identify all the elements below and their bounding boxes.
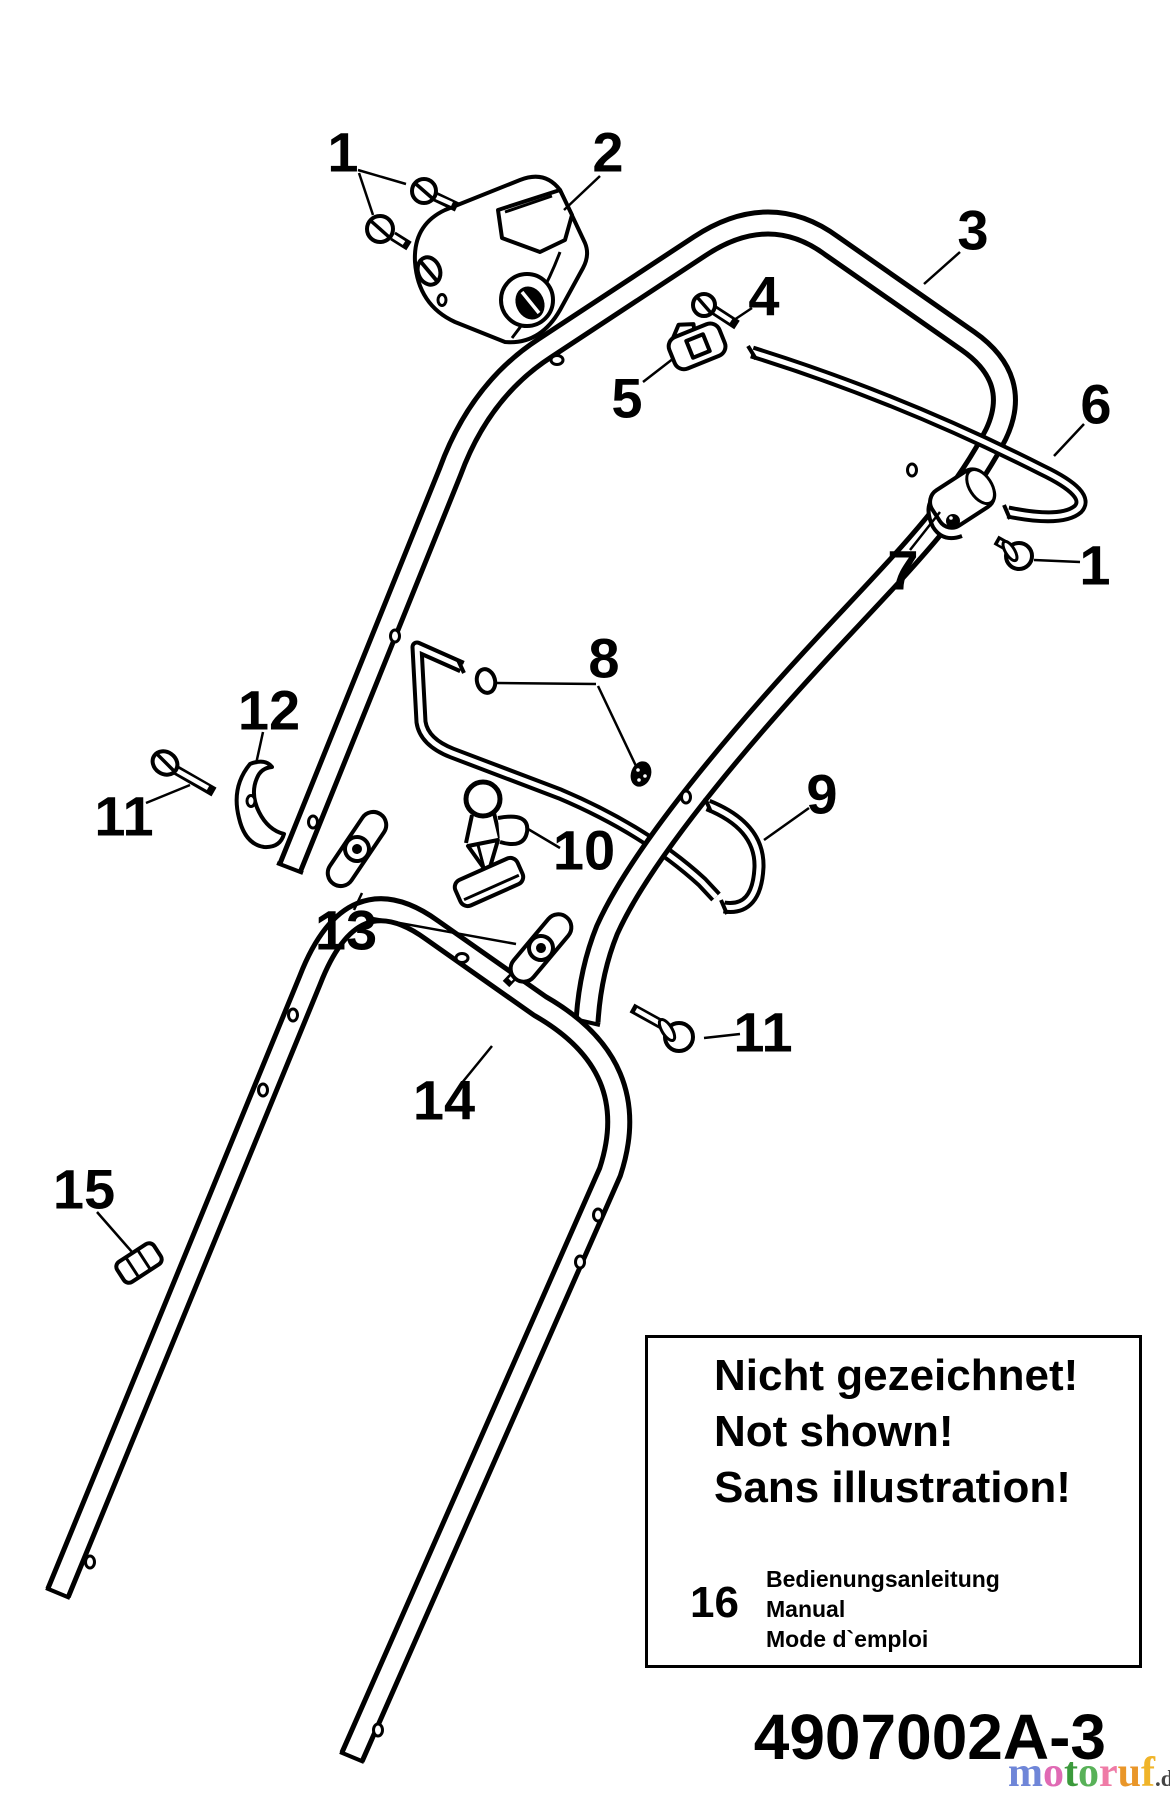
screw-4 <box>693 294 737 325</box>
part-callout-2: 2 <box>592 121 623 184</box>
grommet-8a <box>474 667 498 695</box>
lever-12 <box>237 762 284 847</box>
bolt-11-right <box>632 1008 693 1051</box>
screw-1a <box>412 179 457 207</box>
part-callout-1: 1 <box>1079 534 1110 597</box>
not-shown-line-en: Not shown! <box>714 1404 1139 1460</box>
leader-line-9 <box>764 808 809 840</box>
logo-letter-o: o <box>1043 1750 1064 1796</box>
item-16-line-en: Manual <box>766 1594 1000 1624</box>
part-callout-14: 14 <box>413 1069 475 1132</box>
logo-letter-r: r <box>1099 1750 1118 1796</box>
leader-line-3 <box>924 252 960 284</box>
brace-rod-6 <box>748 346 1081 519</box>
leader-line-1 <box>1034 560 1080 562</box>
part-callout-15: 15 <box>53 1158 115 1221</box>
part-callout-1: 1 <box>327 121 358 184</box>
clamp-lever-13b <box>505 909 576 987</box>
motoruf-logo: motoruf.de <box>1008 1752 1170 1800</box>
logo-letter-u: u <box>1118 1750 1141 1796</box>
logo-letter-o: o <box>1078 1750 1099 1796</box>
leader-line-8 <box>497 683 596 684</box>
leader-line-1 <box>359 173 373 215</box>
bolt-11-left <box>148 747 214 792</box>
motoruf-logo-suffix: .de <box>1155 1766 1170 1791</box>
part-callout-11: 11 <box>94 785 153 848</box>
part-callout-11: 11 <box>733 1001 792 1064</box>
leader-line-5 <box>643 358 674 382</box>
motoruf-logo-letters: motoruf <box>1008 1750 1155 1796</box>
not-shown-line-de: Nicht gezeichnet! <box>714 1348 1139 1404</box>
clamp-lever-13a <box>323 807 392 891</box>
not-shown-box: Nicht gezeichnet! Not shown! Sans illust… <box>645 1335 1142 1668</box>
part-callout-6: 6 <box>1080 373 1111 436</box>
item-16-line-fr: Mode d`emploi <box>766 1624 1000 1654</box>
clamp-7 <box>925 463 1002 538</box>
part-callout-13: 13 <box>315 899 377 962</box>
screw-1c <box>996 539 1032 569</box>
logo-letter-m: m <box>1008 1750 1043 1796</box>
part-callout-8: 8 <box>588 627 619 690</box>
lower-handle-tube <box>46 910 619 1762</box>
callout-layer: 123456718910111213141115 <box>53 121 1112 1253</box>
not-shown-line-fr: Sans illustration! <box>714 1460 1139 1516</box>
part-callout-9: 9 <box>806 763 837 826</box>
part-callout-3: 3 <box>957 199 988 262</box>
part-callout-7: 7 <box>887 539 918 602</box>
item-16-description: Bedienungsanleitung Manual Mode d`emploi <box>766 1564 1000 1654</box>
item-16-number: 16 <box>690 1578 739 1628</box>
logo-letter-t: t <box>1064 1750 1078 1796</box>
leader-line-1 <box>358 170 406 184</box>
not-shown-text: Nicht gezeichnet! Not shown! Sans illust… <box>648 1338 1139 1516</box>
grommet-8b <box>627 758 655 789</box>
logo-letter-f: f <box>1141 1750 1155 1796</box>
part-callout-10: 10 <box>553 819 615 882</box>
screw-1b <box>367 216 409 246</box>
part-callout-4: 4 <box>748 265 779 328</box>
part-callout-5: 5 <box>611 367 642 430</box>
item-16-line-de: Bedienungsanleitung <box>766 1564 1000 1594</box>
cable-clip-5 <box>662 311 729 372</box>
bracket-10 <box>452 782 527 909</box>
part-callout-12: 12 <box>238 679 300 742</box>
clip-15 <box>114 1241 164 1285</box>
parts-diagram-page: { "diagram": { "title_part_number": "490… <box>0 0 1170 1800</box>
leader-line-8 <box>598 686 636 766</box>
